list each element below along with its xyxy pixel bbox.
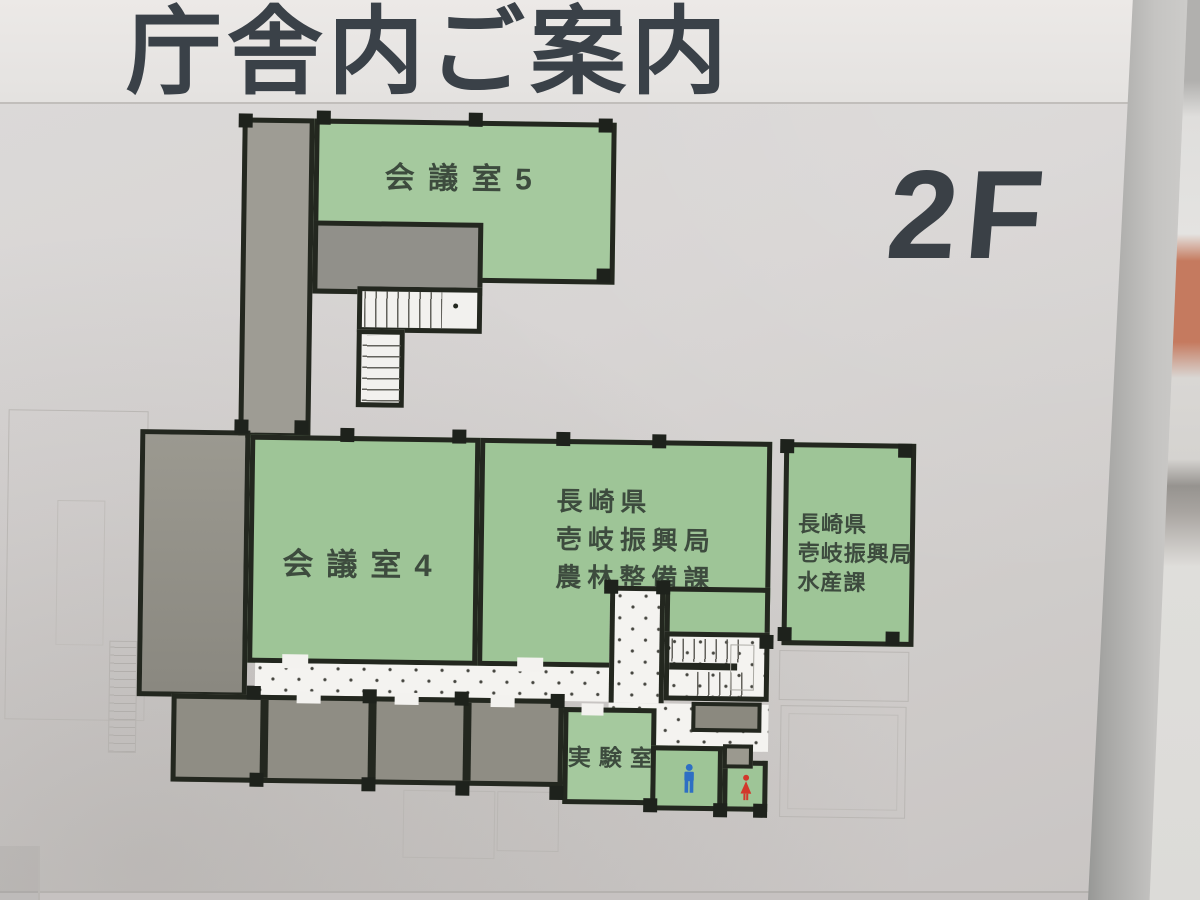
column-marker — [239, 113, 253, 127]
column-marker — [363, 689, 377, 703]
column-marker — [455, 692, 469, 706]
column-marker — [294, 420, 308, 434]
column-marker — [599, 118, 613, 132]
column-marker — [652, 434, 666, 448]
room-agriculture-label: 長崎県 壱岐振興局 農林整備課 — [555, 482, 717, 598]
column-marker — [551, 694, 565, 708]
stairs-north-upper-flight — [364, 291, 442, 328]
column-marker — [317, 111, 331, 125]
column-marker — [778, 627, 792, 641]
room-fisheries-label: 長崎県 壱岐振興局 水産課 — [797, 509, 913, 598]
room-laboratory: 実験室 — [562, 707, 656, 805]
stairs-mid-newel-dot — [665, 645, 670, 650]
room-divider-1 — [260, 700, 269, 778]
sign-title: 庁舎内ご案内 — [126, 0, 732, 104]
column-marker — [549, 786, 563, 800]
door-gap — [282, 654, 308, 668]
column-marker — [556, 432, 570, 446]
column-marker — [455, 782, 469, 796]
service-room-north — [312, 220, 483, 295]
column-marker — [361, 777, 375, 791]
title-band: 庁舎内ご案内 — [0, 0, 1160, 104]
door-gap — [517, 657, 543, 671]
column-marker — [643, 798, 657, 812]
exterior-outline-bottom-2 — [497, 791, 560, 852]
room-divider-3 — [463, 703, 472, 781]
column-marker — [753, 804, 767, 818]
column-marker — [247, 686, 261, 700]
exterior-outline-bottom-1 — [402, 790, 495, 859]
exterior-outline-right-upper — [779, 650, 910, 702]
room-meeting-5-label: 会議室5 — [319, 152, 612, 200]
restroom-vestibule — [723, 744, 753, 768]
stair-newel-dot — [453, 303, 458, 308]
column-marker — [596, 268, 610, 282]
stairs-mid-handrail — [730, 644, 755, 690]
column-marker — [780, 439, 794, 453]
photo-scene: 庁舎内ご案内 2F 会議室5 — [0, 0, 1200, 900]
column-marker — [656, 580, 670, 594]
service-room-row — [170, 694, 563, 787]
elevator — [691, 702, 761, 733]
column-marker — [340, 428, 354, 442]
door-gap — [297, 691, 321, 703]
sign-board: 庁舎内ご案内 2F 会議室5 — [0, 0, 1200, 900]
column-marker — [234, 419, 248, 433]
door-gap — [581, 703, 603, 715]
room-divider-2 — [368, 701, 377, 779]
male-icon — [681, 764, 696, 794]
column-marker — [713, 803, 727, 817]
female-icon — [739, 774, 752, 800]
column-marker — [759, 635, 773, 649]
door-gap — [491, 695, 515, 707]
column-marker — [898, 444, 912, 458]
column-marker — [885, 632, 899, 646]
corridor-block-west — [137, 429, 251, 698]
room-laboratory-label: 実験室 — [568, 738, 651, 773]
exterior-stair-west — [108, 641, 138, 753]
stairs-mid-divider — [669, 662, 737, 670]
room-meeting-4-label: 会議室4 — [253, 538, 474, 586]
restroom-male — [650, 745, 723, 811]
exterior-outline-left-inner — [55, 500, 105, 646]
stair-lobby — [665, 586, 771, 637]
room-meeting-4: 会議室4 — [247, 435, 480, 666]
corridor-column-north — [238, 117, 314, 438]
wall-corner-line — [38, 846, 40, 900]
room-fisheries-division: 長崎県 壱岐振興局 水産課 — [781, 442, 916, 647]
exterior-outline-right-lower-inner — [787, 713, 898, 811]
board-bottom-shade — [0, 893, 1110, 900]
column-marker — [469, 113, 483, 127]
column-marker — [452, 429, 466, 443]
stairs-north-lower-flight — [362, 335, 401, 402]
wall-corner-shadow — [0, 846, 38, 900]
floor-indicator: 2F — [882, 142, 1058, 287]
door-gap — [395, 693, 419, 705]
column-marker — [249, 773, 263, 787]
column-marker — [604, 580, 618, 594]
floor-plan: 会議室5 会議室4 長崎県 壱岐振興局 農林整備課 — [0, 0, 1200, 900]
corridor-stair-access — [609, 586, 666, 704]
